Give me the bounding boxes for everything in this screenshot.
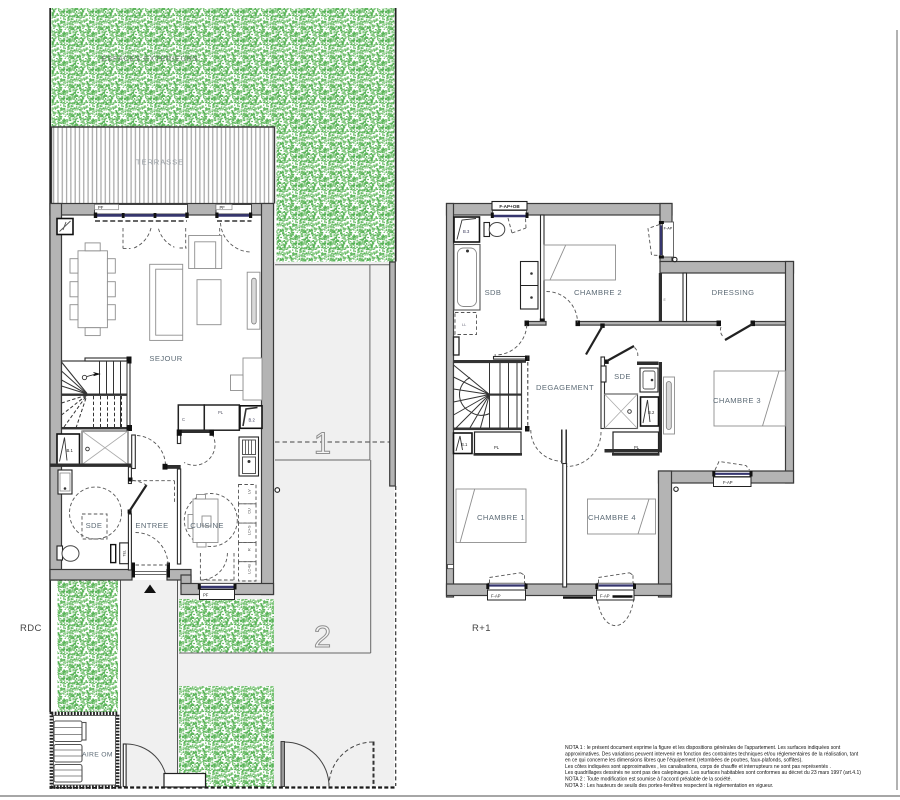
svg-text:ESPACES EXTERIEURS: ESPACES EXTERIEURS bbox=[102, 54, 199, 63]
svg-text:AIRE OM: AIRE OM bbox=[82, 752, 113, 759]
svg-text:SDB: SDB bbox=[485, 288, 502, 297]
svg-text:CU: CU bbox=[248, 508, 252, 514]
svg-text:LL: LL bbox=[462, 323, 466, 327]
svg-text:B.2: B.2 bbox=[249, 418, 256, 423]
svg-text:SEJOUR: SEJOUR bbox=[149, 354, 182, 363]
svg-text:LC+B: LC+B bbox=[248, 564, 252, 574]
svg-text:SDE: SDE bbox=[614, 372, 631, 381]
svg-text:F-AP: F-AP bbox=[664, 227, 673, 231]
svg-text:B.3: B.3 bbox=[463, 229, 470, 234]
svg-text:LC+S: LC+S bbox=[248, 525, 252, 535]
svg-text:R+1: R+1 bbox=[472, 623, 491, 634]
svg-text:Les côtes indiquées sont appro: Les côtes indiquées sont approximatives … bbox=[565, 764, 831, 770]
svg-text:PF: PF bbox=[220, 205, 226, 210]
svg-text:B.2: B.2 bbox=[648, 410, 655, 415]
svg-text:CHAMBRE 2: CHAMBRE 2 bbox=[574, 288, 622, 297]
svg-text:NOTA 2 : Toute modification es: NOTA 2 : Toute modification est soumise … bbox=[565, 777, 732, 783]
svg-text:PF: PF bbox=[203, 593, 209, 598]
svg-text:F-AP+OB: F-AP+OB bbox=[499, 204, 520, 209]
svg-text:DRESSING: DRESSING bbox=[712, 288, 755, 297]
svg-text:PL: PL bbox=[218, 410, 224, 415]
svg-text:B.1: B.1 bbox=[67, 448, 74, 453]
svg-text:F-AP: F-AP bbox=[491, 594, 501, 599]
svg-text:RDC: RDC bbox=[20, 623, 42, 634]
svg-text:SDE: SDE bbox=[86, 521, 103, 530]
svg-text:CHAMBRE 4: CHAMBRE 4 bbox=[588, 513, 636, 522]
svg-text:1: 1 bbox=[314, 426, 331, 461]
svg-text:F-AP: F-AP bbox=[723, 480, 733, 485]
svg-text:CHAMBRE 1: CHAMBRE 1 bbox=[477, 513, 525, 522]
svg-text:NOTA 1 : le présent document e: NOTA 1 : le présent document exprime la … bbox=[565, 745, 841, 751]
svg-text:DEGAGEMENT: DEGAGEMENT bbox=[536, 383, 594, 392]
svg-text:TERRASSE: TERRASSE bbox=[136, 158, 184, 167]
svg-text:CUISINE: CUISINE bbox=[190, 521, 224, 530]
svg-text:approximatives. Des variations: approximatives. Des variations peuvent i… bbox=[565, 751, 859, 757]
svg-text:PF: PF bbox=[98, 205, 104, 210]
svg-text:TEL: TEL bbox=[123, 550, 127, 557]
svg-text:en ce qui concerne les dimensi: en ce qui concerne les dimensions libres… bbox=[565, 758, 803, 764]
svg-text:C: C bbox=[182, 417, 185, 422]
svg-text:R: R bbox=[248, 548, 252, 551]
svg-text:PL: PL bbox=[494, 445, 500, 450]
svg-text:CHAMBRE 3: CHAMBRE 3 bbox=[713, 396, 761, 405]
svg-text:F-AP: F-AP bbox=[600, 594, 610, 599]
svg-text:B.1: B.1 bbox=[461, 442, 468, 447]
svg-text:Les quadrillages dessinés ne s: Les quadrillages dessinés ne sont pas de… bbox=[565, 770, 861, 776]
svg-text:ENTREE: ENTREE bbox=[135, 521, 168, 530]
svg-text:NOTA 3 : Les hauteurs de seuil: NOTA 3 : Les hauteurs de seuils des port… bbox=[565, 783, 773, 789]
svg-text:LV: LV bbox=[248, 489, 252, 494]
svg-text:2: 2 bbox=[314, 619, 331, 654]
